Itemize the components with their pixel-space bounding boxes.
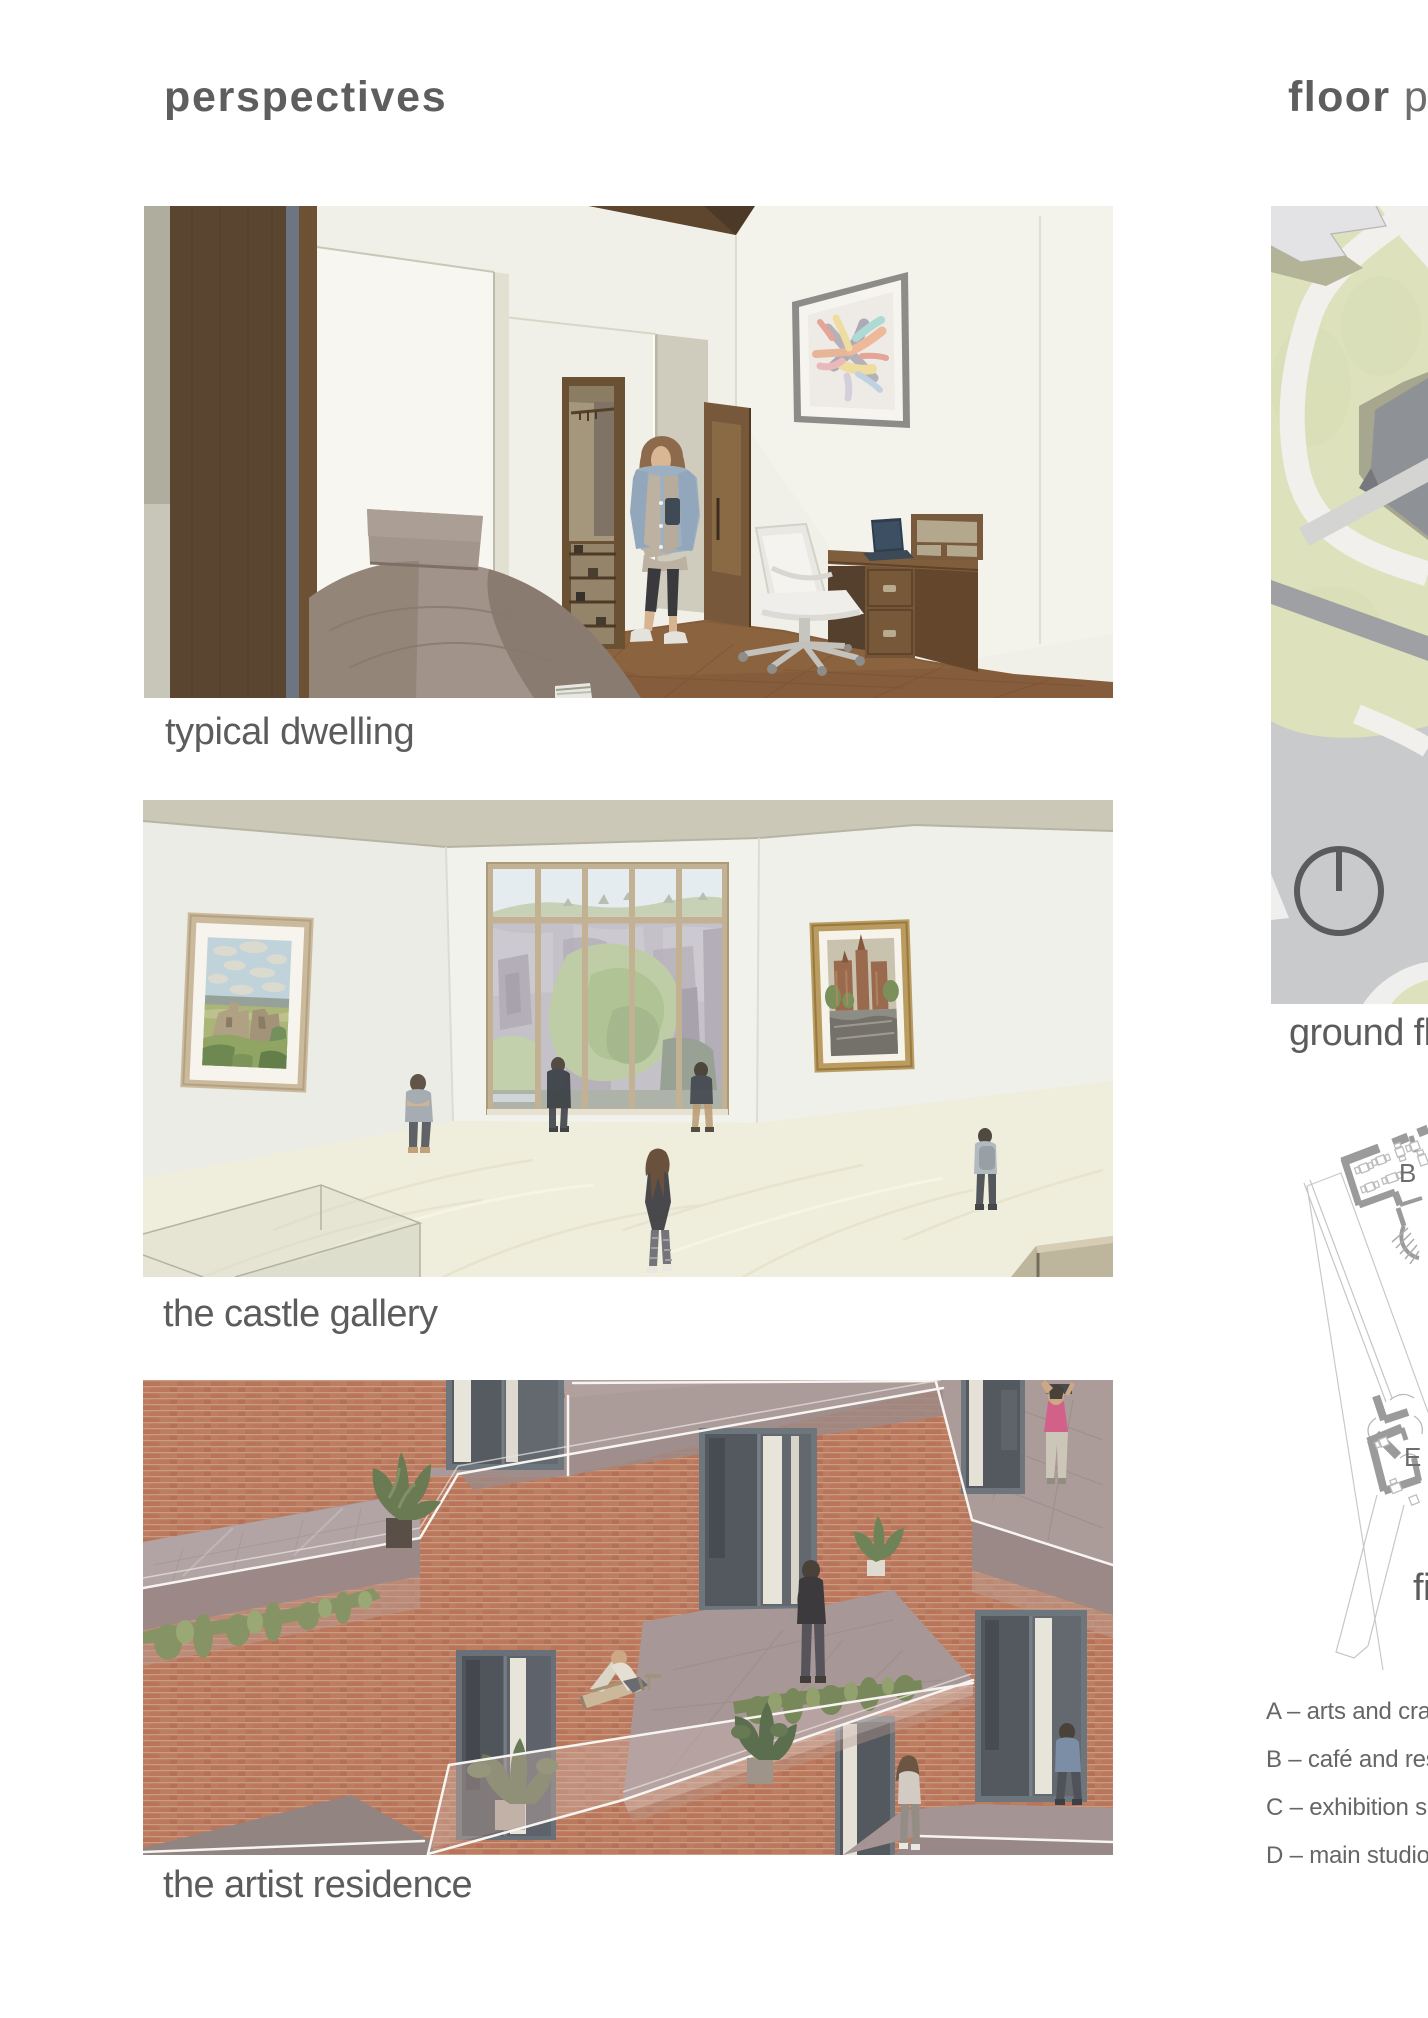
svg-text:B: B <box>1399 1158 1416 1188</box>
svg-text:E: E <box>1404 1442 1421 1472</box>
